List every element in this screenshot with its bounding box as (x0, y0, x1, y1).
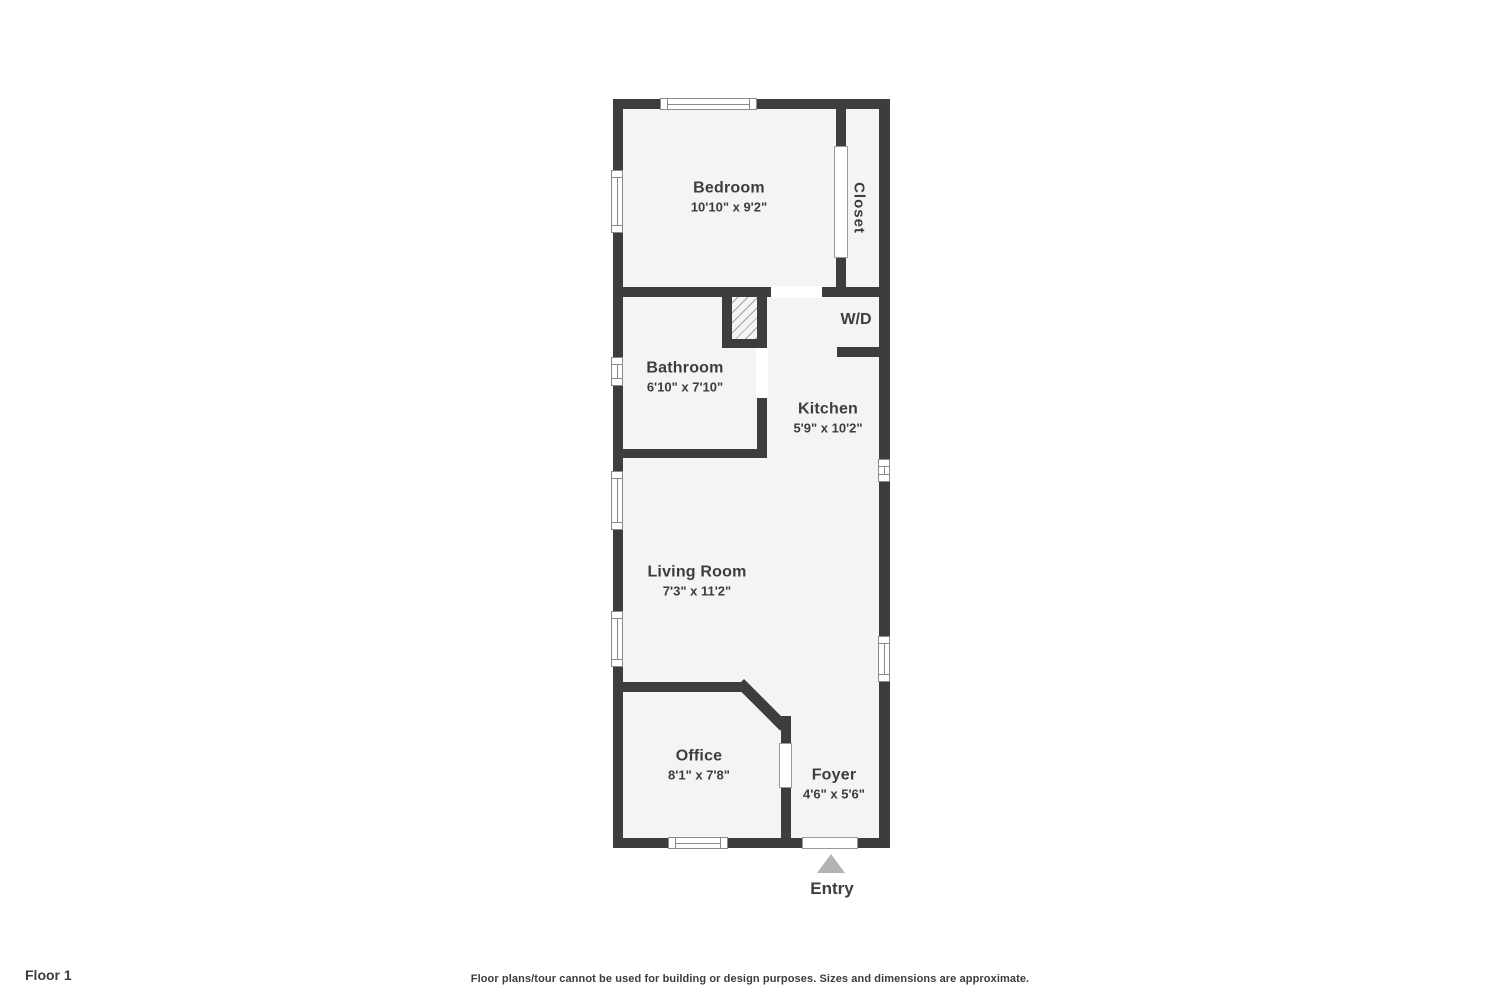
window-bedroom-top (660, 98, 757, 110)
entry-label: Entry (810, 879, 853, 899)
window-kitchen-right (878, 459, 890, 482)
hatched-shaft (730, 296, 759, 340)
wall-office-top (613, 682, 744, 692)
living-room-name: Living Room (647, 563, 746, 583)
door-bathroom (756, 348, 768, 398)
door-foyer (779, 743, 792, 788)
foyer-dimensions: 4'6" x 5'6" (803, 786, 865, 805)
door-entry (802, 837, 858, 849)
office-label: Office 8'1" x 7'8" (668, 747, 730, 786)
window-bathroom-left (611, 357, 623, 386)
wall-bedroom-bottom (623, 287, 879, 297)
disclaimer-text: Floor plans/tour cannot be used for buil… (0, 973, 1500, 985)
window-living-left-upper (611, 471, 623, 530)
closet-label: Closet (851, 182, 868, 234)
office-name: Office (668, 747, 730, 767)
kitchen-label: Kitchen 5'9" x 10'2" (793, 400, 862, 439)
door-bedroom (771, 286, 822, 298)
living-room-label: Living Room 7'3" x 11'2" (647, 563, 746, 602)
bedroom-label: Bedroom 10'10" x 9'2" (691, 179, 767, 218)
foyer-label: Foyer 4'6" x 5'6" (803, 766, 865, 805)
floorplan-page: { "rooms": { "bedroom": {"name": "Bedroo… (0, 0, 1500, 1000)
window-living-left-lower (611, 611, 623, 667)
living-room-dimensions: 7'3" x 11'2" (647, 583, 746, 602)
bedroom-dimensions: 10'10" x 9'2" (691, 199, 767, 218)
bathroom-label: Bathroom 6'10" x 7'10" (646, 359, 723, 398)
foyer-name: Foyer (803, 766, 865, 786)
bathroom-dimensions: 6'10" x 7'10" (646, 379, 723, 398)
window-office-bottom (668, 837, 728, 849)
bathroom-name: Bathroom (646, 359, 723, 379)
window-bedroom-left (611, 170, 623, 233)
kitchen-dimensions: 5'9" x 10'2" (793, 420, 862, 439)
wall-bathroom-bottom (613, 449, 767, 458)
kitchen-name: Kitchen (793, 400, 862, 420)
entry-arrow-icon (817, 854, 845, 873)
washer-dryer-label: W/D (840, 311, 871, 329)
window-living-right (878, 636, 890, 682)
wall-wd-stub (837, 347, 879, 357)
bedroom-name: Bedroom (691, 179, 767, 199)
door-closet-sliding (834, 146, 848, 258)
office-dimensions: 8'1" x 7'8" (668, 767, 730, 786)
